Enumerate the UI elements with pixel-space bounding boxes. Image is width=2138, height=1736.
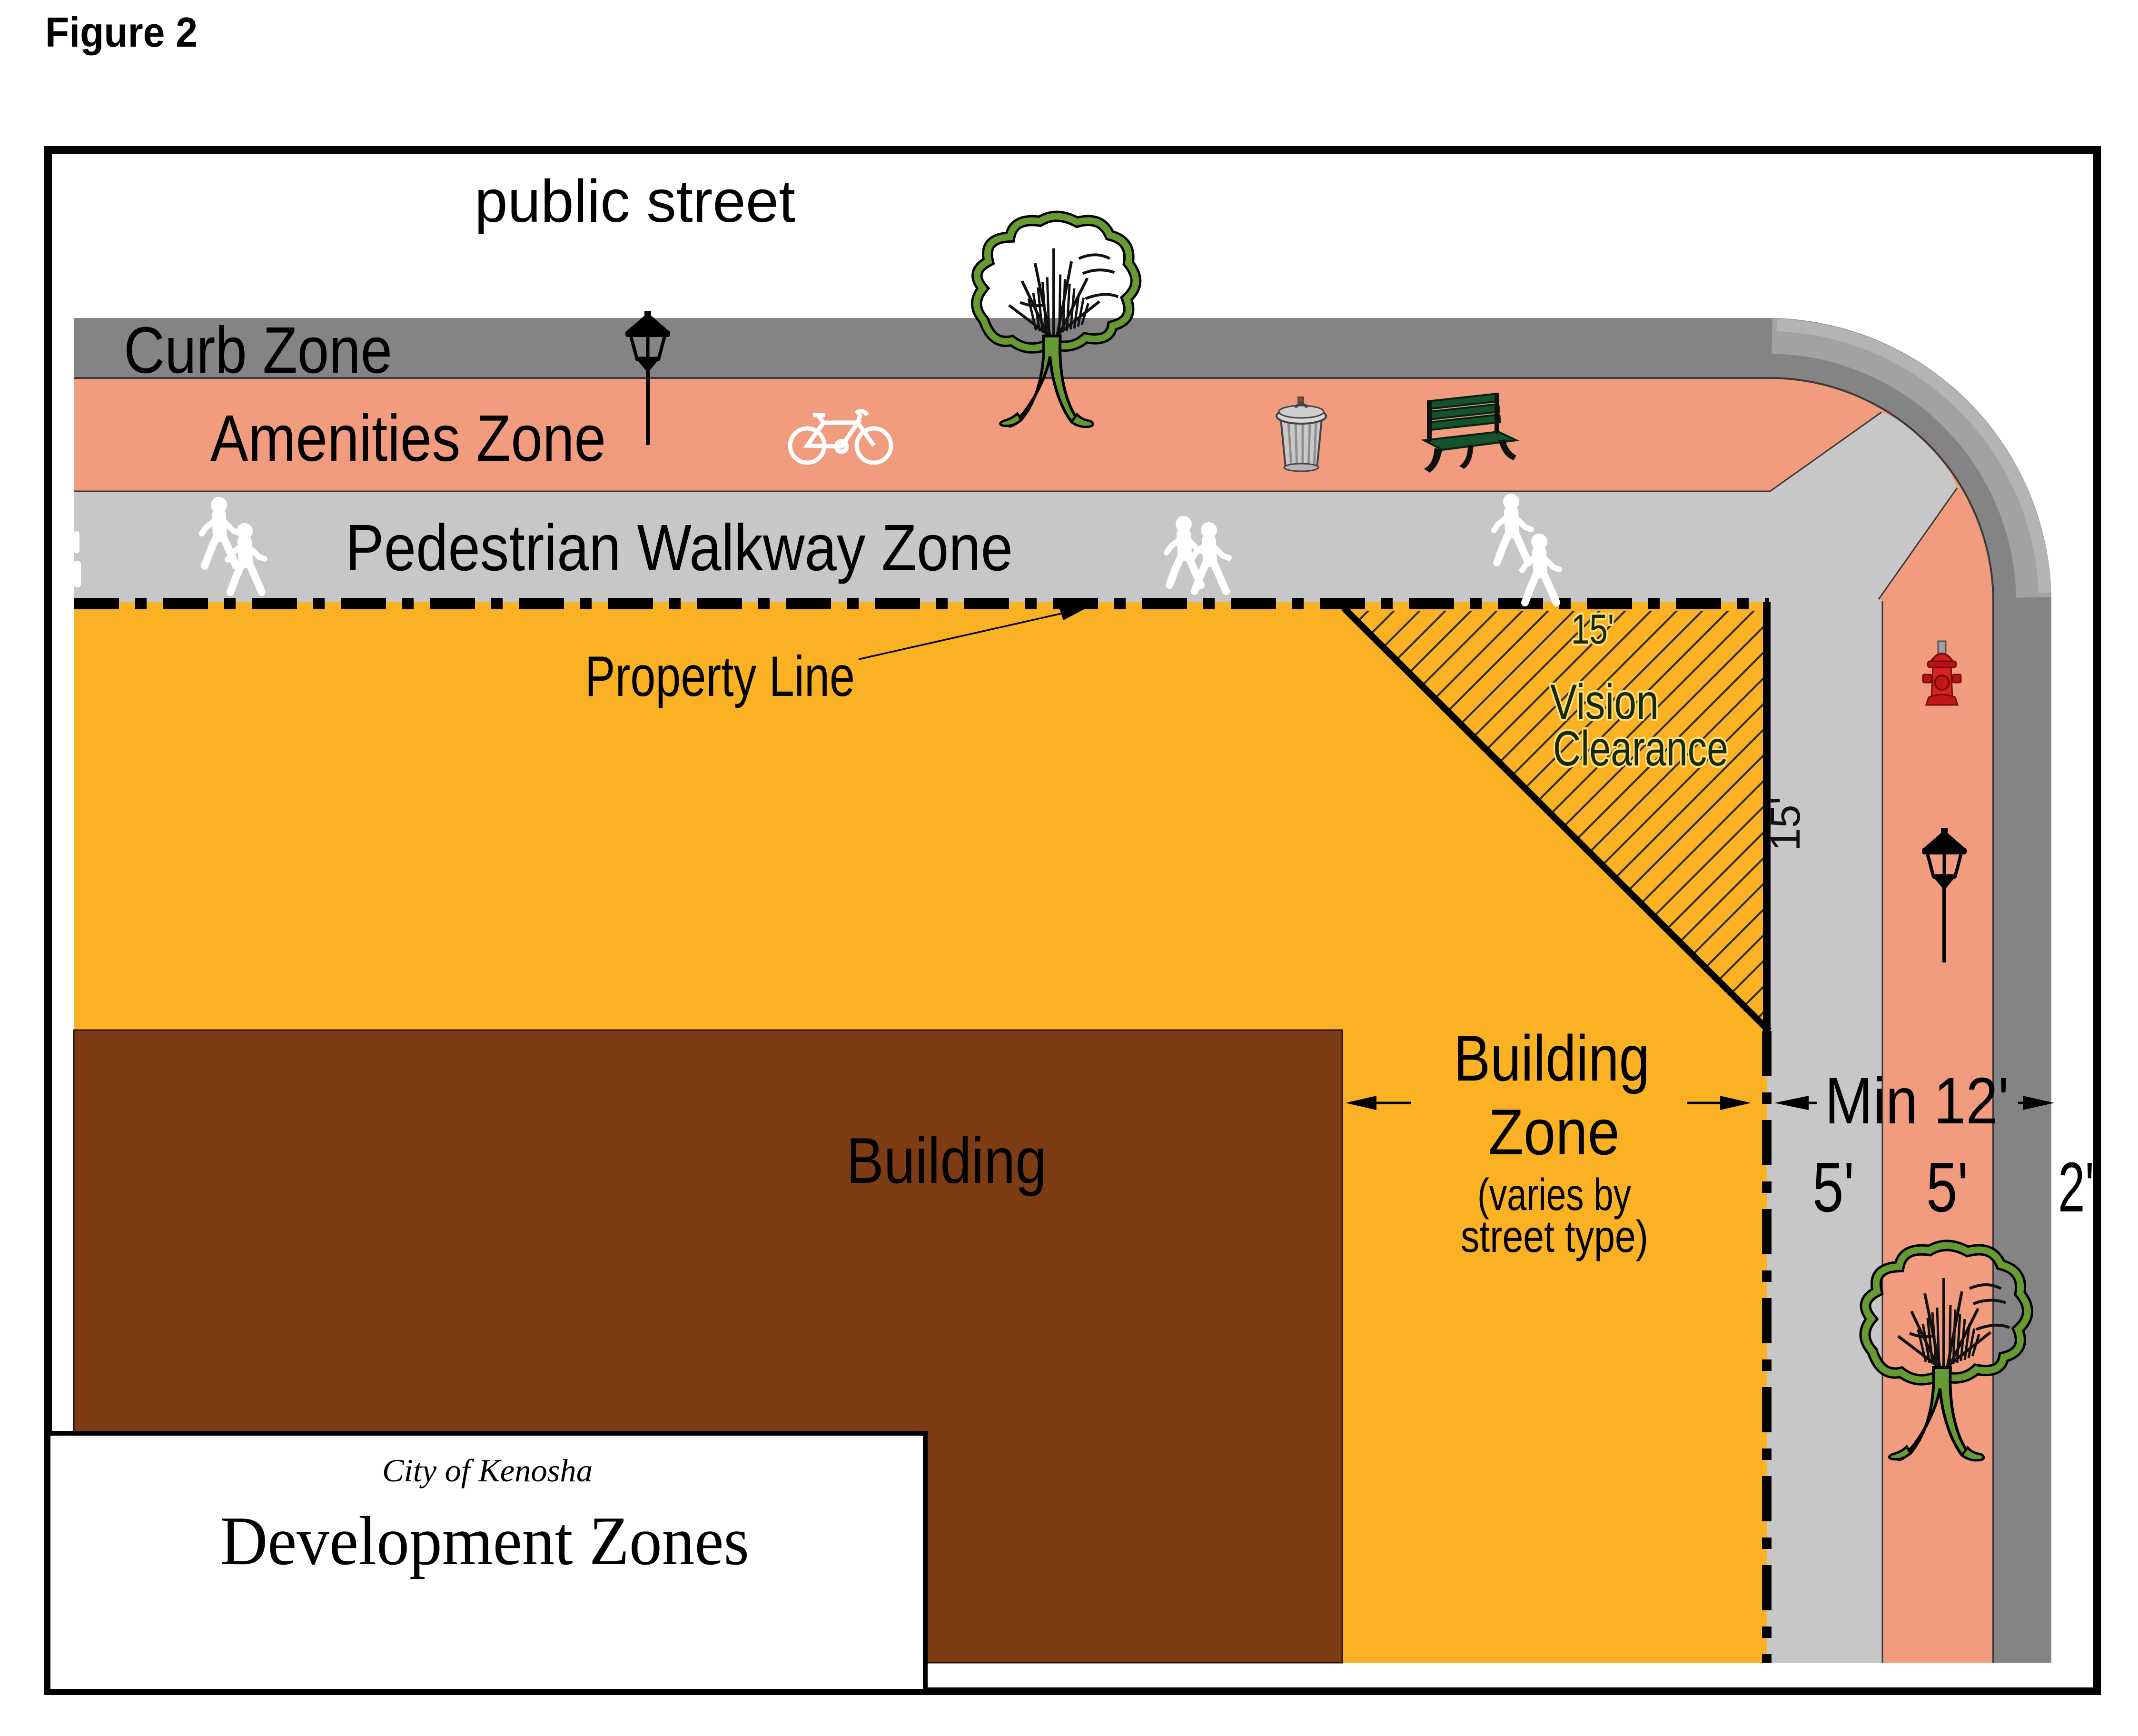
svg-text:street type): street type)	[1461, 1211, 1648, 1262]
svg-text:Zone: Zone	[1488, 1096, 1620, 1168]
svg-text:Development Zones: Development Zones	[220, 1502, 749, 1579]
svg-text:Clearance: Clearance	[1553, 721, 1728, 776]
svg-text:2': 2'	[2058, 1148, 2094, 1227]
svg-text:Pedestrian Walkway Zone: Pedestrian Walkway Zone	[346, 511, 1013, 585]
svg-text:Property Line: Property Line	[585, 645, 855, 708]
svg-text:Min 12': Min 12'	[1825, 1064, 2009, 1138]
svg-text:5': 5'	[1926, 1148, 1968, 1227]
svg-text:15': 15'	[1762, 797, 1809, 852]
svg-text:Building: Building	[846, 1124, 1047, 1197]
svg-text:15': 15'	[1571, 605, 1614, 653]
svg-text:City of Kenosha: City of Kenosha	[382, 1452, 593, 1488]
svg-text:Building: Building	[1454, 1022, 1650, 1094]
svg-text:Figure 2: Figure 2	[45, 9, 198, 56]
svg-text:Curb Zone: Curb Zone	[124, 314, 392, 387]
svg-text:Amenities Zone: Amenities Zone	[210, 402, 606, 475]
svg-text:public street: public street	[475, 168, 795, 235]
svg-text:5': 5'	[1812, 1148, 1854, 1227]
